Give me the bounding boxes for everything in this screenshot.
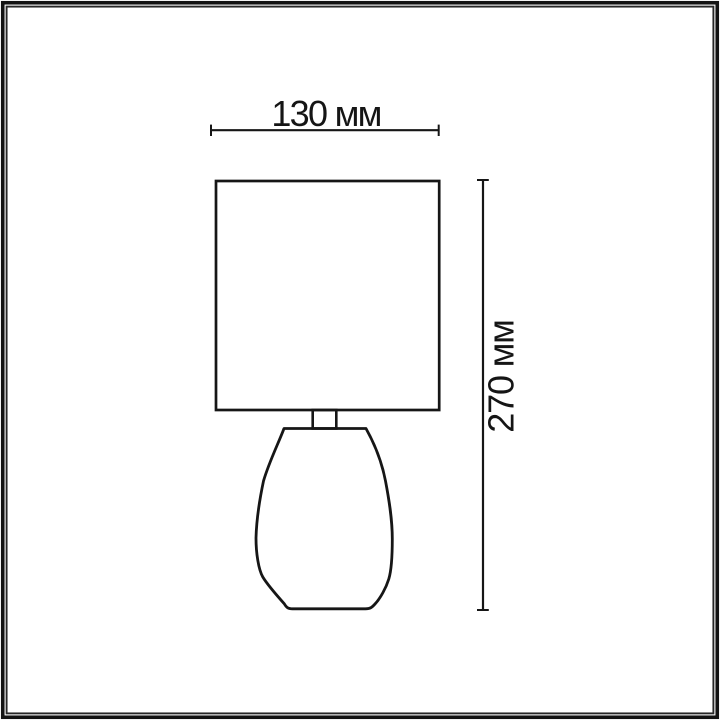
svg-text:270 мм: 270 мм [481,320,522,432]
svg-text:130 мм: 130 мм [271,93,380,134]
